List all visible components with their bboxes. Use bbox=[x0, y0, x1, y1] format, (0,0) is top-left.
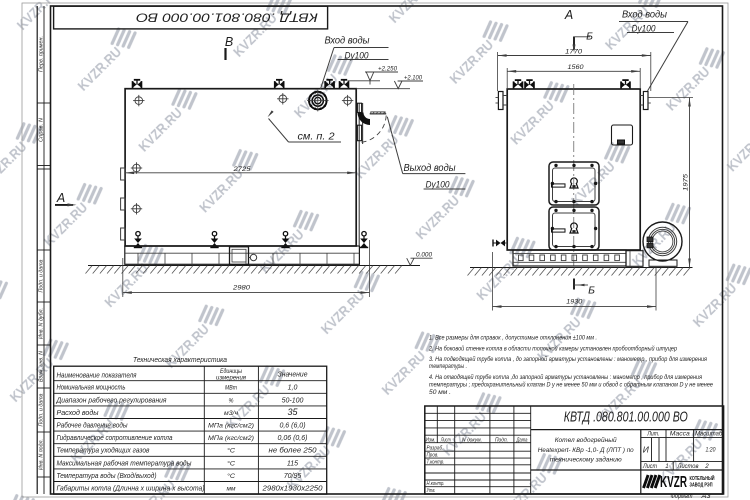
svg-text:МВт: МВт bbox=[225, 385, 237, 392]
svg-text:%: % bbox=[229, 397, 234, 404]
svg-text:см. п. 2: см. п. 2 bbox=[298, 132, 335, 143]
svg-text:ЗАВОД РЭП: ЗАВОД РЭП bbox=[690, 483, 713, 489]
svg-text:2725: 2725 bbox=[232, 167, 251, 173]
svg-text:Изм.: Изм. bbox=[426, 437, 436, 443]
svg-text:температуры .: температуры . bbox=[429, 363, 467, 370]
svg-text:Взам. инв. N: Взам. инв. N bbox=[39, 351, 45, 382]
svg-text:Heatexpert- КВр -1,0- Д (ЛПТ ): Heatexpert- КВр -1,0- Д (ЛПТ ) по bbox=[538, 447, 634, 454]
svg-text:0.000: 0.000 bbox=[416, 253, 433, 259]
svg-text:измерения: измерения bbox=[216, 374, 247, 381]
svg-text:Лист: Лист bbox=[440, 437, 451, 443]
svg-text:Масштаб: Масштаб bbox=[695, 431, 723, 437]
svg-text:Диапазон рабочего регулировани: Диапазон рабочего регулирования bbox=[56, 396, 167, 404]
svg-text:N докум.: N докум. bbox=[462, 437, 482, 443]
svg-text:Dy100: Dy100 bbox=[345, 50, 370, 60]
svg-text:Н.контр.: Н.контр. bbox=[427, 481, 445, 487]
svg-text:70/95: 70/95 bbox=[284, 473, 302, 480]
svg-text:Пров.: Пров. bbox=[427, 453, 439, 459]
svg-text:Dy100: Dy100 bbox=[426, 179, 451, 189]
svg-text:1560: 1560 bbox=[568, 65, 585, 71]
svg-text:Температура уходящих газов: Температура уходящих газов bbox=[57, 447, 150, 455]
svg-text:3. На подводящей трубе котла: 3. На подводящей трубе котла , до запорн… bbox=[429, 355, 707, 363]
svg-text:1930: 1930 bbox=[566, 300, 583, 306]
svg-text:Максимальная рабочая температу: Максимальная рабочая температура воды bbox=[57, 459, 193, 467]
svg-text:В: В bbox=[225, 35, 233, 49]
svg-text:2: 2 bbox=[704, 463, 709, 470]
svg-text:Температура воды (Вход/выход): Температура воды (Вход/выход) bbox=[57, 472, 157, 480]
svg-text:Справ. N: Справ. N bbox=[39, 118, 45, 142]
svg-text:0,06 (0,6): 0,06 (0,6) bbox=[278, 435, 308, 442]
svg-text:Значение: Значение bbox=[278, 371, 308, 378]
svg-text:КВТД .080.801.00.000 ВО: КВТД .080.801.00.000 ВО bbox=[564, 410, 688, 426]
svg-text:Рабочее давление воды: Рабочее давление воды bbox=[57, 422, 129, 430]
svg-text:температуры ; предохранительн: температуры ; предохранительный клапан D… bbox=[429, 381, 713, 389]
svg-text:2980: 2980 bbox=[232, 285, 251, 291]
svg-text:И: И bbox=[643, 445, 650, 455]
svg-text:Подп. и дата: Подп. и дата bbox=[39, 393, 45, 426]
svg-text:Т.контр.: Т.контр. bbox=[427, 459, 445, 465]
svg-text:КОТЕЛЬНЫЙ: КОТЕЛЬНЫЙ bbox=[690, 474, 715, 482]
svg-text:1: 1 bbox=[665, 463, 668, 470]
svg-text:А: А bbox=[564, 8, 573, 22]
svg-text:°С: °С bbox=[227, 459, 235, 467]
svg-text:Разраб.: Разраб. bbox=[427, 446, 444, 452]
svg-text:Перв. примен.: Перв. примен. bbox=[39, 36, 45, 72]
svg-text:Номинальная мощность: Номинальная мощность bbox=[57, 385, 126, 392]
svg-text:KVZR: KVZR bbox=[660, 474, 687, 491]
svg-text:0,6 (6,0): 0,6 (6,0) bbox=[279, 423, 305, 430]
svg-text:115: 115 bbox=[287, 460, 298, 467]
svg-text:1. Все размеры для справок ,: 1. Все размеры для справок , допустимые … bbox=[429, 334, 597, 342]
svg-text:А3: А3 bbox=[700, 494, 711, 500]
svg-text:°С: °С bbox=[227, 472, 235, 480]
svg-text:м3/ч: м3/ч bbox=[224, 410, 239, 417]
svg-text:Масса: Масса bbox=[670, 431, 691, 437]
svg-text:Утв.: Утв. bbox=[427, 488, 436, 494]
svg-text:МПа (кгс/см2): МПа (кгс/см2) bbox=[208, 435, 254, 442]
svg-text:Подп.: Подп. bbox=[495, 437, 508, 443]
svg-text:Техническая характеристика: Техническая характеристика bbox=[133, 355, 227, 364]
svg-text:Листов: Листов bbox=[677, 464, 699, 470]
svg-text:Подп. и дата: Подп. и дата bbox=[39, 259, 45, 292]
svg-text:МПа (кгс/см2): МПа (кгс/см2) bbox=[208, 423, 254, 430]
svg-text:Б: Б bbox=[588, 285, 595, 297]
svg-text:Гидравлическое сопротивление к: Гидравлическое сопротивление котла bbox=[57, 434, 173, 442]
svg-text:Выход воды: Выход воды bbox=[404, 163, 457, 174]
svg-text:Б: Б bbox=[586, 31, 593, 43]
svg-text:Вход воды: Вход воды bbox=[622, 10, 668, 21]
svg-text:мм: мм bbox=[227, 486, 236, 493]
svg-text:1975: 1975 bbox=[683, 173, 689, 191]
svg-text:2980х1930х2250: 2980х1930х2250 bbox=[261, 486, 322, 493]
svg-text:1,0: 1,0 bbox=[288, 385, 298, 392]
svg-text:Инв. N дубл.: Инв. N дубл. bbox=[39, 308, 45, 339]
svg-text:не более 250: не более 250 bbox=[269, 447, 317, 455]
svg-text:Инв. N подл.: Инв. N подл. bbox=[39, 439, 45, 470]
svg-text:техническому заданию: техническому заданию bbox=[550, 455, 622, 463]
svg-text:Dy100: Dy100 bbox=[632, 23, 657, 33]
svg-text:Лит.: Лит. bbox=[647, 431, 660, 437]
svg-text:50 мм .: 50 мм . bbox=[429, 389, 451, 396]
svg-text:КВТД .080.801.00.000 ВО: КВТД .080.801.00.000 ВО bbox=[136, 11, 318, 23]
svg-text:4. На отводящей трубе котла ,: 4. На отводящей трубе котла ,до запорной… bbox=[429, 373, 702, 381]
svg-text:Дата: Дата bbox=[516, 437, 528, 443]
svg-text:Расход воды: Расход воды bbox=[57, 409, 100, 417]
svg-text:Наименование показателя: Наименование показателя bbox=[57, 372, 137, 379]
svg-text:Формат: Формат bbox=[671, 494, 693, 500]
svg-text:А: А bbox=[56, 191, 65, 205]
svg-text:Лист: Лист bbox=[642, 464, 657, 470]
svg-text:°С: °С bbox=[227, 447, 235, 455]
svg-text:50-100: 50-100 bbox=[282, 397, 304, 404]
svg-text:Котел водогрейный: Котел водогрейный bbox=[555, 436, 617, 444]
svg-text:1:20: 1:20 bbox=[706, 448, 717, 454]
svg-text:Вход воды: Вход воды bbox=[325, 36, 371, 47]
svg-text:Габариты котла (Длинна х ширин: Габариты котла (Длинна х ширина х высота… bbox=[57, 485, 205, 493]
svg-text:35: 35 bbox=[287, 407, 298, 417]
svg-text:2. На боковой стенке котла в: 2. На боковой стенке котла в области топ… bbox=[428, 344, 677, 352]
